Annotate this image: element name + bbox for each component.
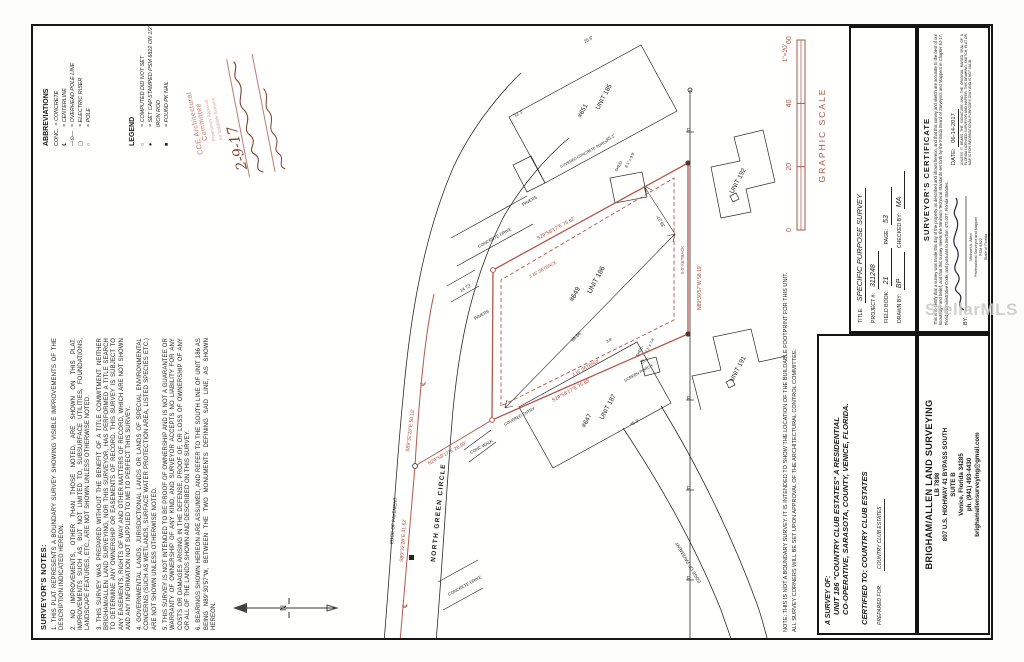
surveyor-signature-icon — [951, 194, 969, 314]
graphic-scale: 0204060 1"=20' GRAPHIC SCALE — [773, 26, 844, 240]
firm-address-line: ph. (941) 493-4430 — [966, 344, 974, 625]
title-block-row: PROJECT #:311248 — [870, 36, 879, 323]
plat-label: #649 — [569, 286, 583, 303]
firm-address-line: LB 7898 — [934, 344, 942, 625]
svg-text:20: 20 — [786, 163, 793, 171]
stellar-mls-watermark: StellarMLS — [925, 300, 1018, 320]
svg-text:0: 0 — [786, 228, 793, 232]
plat-label: ℄ — [402, 603, 409, 610]
footnote-line1: NOTE: THIS IS NOT A BOUNDARY SURVEY. IT … — [783, 250, 790, 632]
plat-label: 45.3' — [629, 418, 640, 427]
plat-label: #647 — [581, 413, 594, 429]
plat-label: 25.6' — [583, 35, 594, 44]
rotated-document-wrapper: SURVEYOR'S NOTES: 1. THIS PLAT REPRESENT… — [31, 24, 993, 640]
computed-point-icon — [413, 464, 418, 469]
svg-text:1"=20': 1"=20' — [782, 44, 789, 62]
abbreviations: ABBREVIATIONS CONC.= CONCRETE℄= CENTERLI… — [43, 26, 94, 146]
surveyor-note-3: 3. THIS SURVEY WAS PREPARED WITHOUT THE … — [97, 338, 134, 630]
plat-label: PAVERS — [521, 194, 538, 206]
certificate-title: SURVEYOR'S CERTIFICATE — [922, 34, 931, 325]
title-block: TITLE:SPECIFIC PURPOSE SURVEYPROJECT #:3… — [849, 26, 917, 334]
computed-point-icon — [491, 268, 496, 273]
plat-label: E — [687, 128, 691, 134]
certificate-block: SURVEYOR'S CERTIFICATE This is to certif… — [917, 26, 990, 334]
notes-list: 1. THIS PLAT REPRESENTS A BOUNDARY SURVE… — [52, 338, 218, 630]
plat-label: 69.86' — [570, 330, 582, 342]
plat-label: 12.1' — [513, 109, 524, 118]
firm-address-line: 807 U.S. HIGHWAY 41 BYPASS SOUTH — [942, 344, 950, 625]
site-features — [438, 45, 785, 610]
plat-label: S89°32'28"E 31.62' — [399, 519, 408, 562]
set-monument-icon — [685, 331, 690, 336]
title-block-row: TITLE:SPECIFIC PURPOSE SURVEY — [855, 36, 866, 323]
legend-title: LEGEND — [129, 24, 136, 146]
plat-label: UNIT 192 — [729, 167, 748, 195]
title-block-row: DRAWN BY:BPCHECKED BY:MA — [896, 36, 905, 323]
plat-label: #651 — [577, 103, 590, 119]
firm-address-line: Venice, Florida 34285 — [958, 344, 966, 625]
certificate-body: This is to certify that a survey was mad… — [933, 34, 949, 325]
certified-to: CERTIFIED TO: COUNTRY CLUB ESTATES — [860, 344, 869, 625]
plat-label: 20.1' — [639, 356, 649, 365]
plat-label: SCREEN PORCH — [623, 363, 654, 383]
dimension-arrows — [447, 186, 675, 408]
surveyor-note-2: 2. NO IMPROVEMENTS, OTHER THAN THOSE NOT… — [71, 338, 93, 630]
surveyors-notes: SURVEYOR'S NOTES: 1. THIS PLAT REPRESENT… — [39, 338, 222, 630]
surveyor-note-6: 6. BEARINGS SHOWN HEREON ARE ASSUMED, AN… — [196, 338, 218, 630]
set-monument-icon — [685, 160, 690, 165]
survey-of-block: A SURVEY OF: UNIT 186 "COUNTRY CLUB ESTA… — [817, 334, 917, 635]
scale-bar-icon: 0204060 1"=20' GRAPHIC SCALE — [773, 26, 839, 240]
plat-label: 36.27' — [656, 214, 666, 227]
plat-label: S29°58'17"E 75.65' — [551, 378, 592, 404]
surveyor-note-1: 1. THIS PLAT REPRESENTS A BOUNDARY SURVE… — [52, 338, 67, 630]
survey-of-line2: CO-OPERATIVE, SARASOTA, COUNTY, VENICE, … — [841, 344, 850, 615]
legend: LEGEND ○= COMPUTED DID NOT SET●= SET CAP… — [129, 24, 171, 146]
survey-sheet: SURVEYOR'S NOTES: 1. THIS PLAT REPRESENT… — [31, 24, 993, 640]
symbol-row: ℄= CENTERLINE — [61, 26, 69, 146]
footnote-line2: ALL SURVEY CORNERS WILL BE SET UPON APPR… — [792, 250, 799, 632]
plat-label: E — [687, 576, 691, 582]
firm-name: BRIGHAM/ALLEN LAND SURVEYING — [924, 344, 934, 625]
plat-label: E — [687, 396, 691, 402]
plat-label: N89°30'57"W 58.19' — [697, 265, 703, 310]
plat-label: SHED- — [613, 159, 624, 173]
plat-label: 5.0' SETBACK — [680, 246, 685, 274]
plat-label: E — [687, 486, 691, 492]
symbol-row: ▢= ELECTRIC RISER — [77, 26, 85, 146]
certificate-date: 06-14-2017 — [951, 109, 959, 147]
plat-label: COVERED CONCRETE PORCH — [560, 139, 610, 169]
plat-label: 45.1' — [605, 133, 616, 142]
symbol-row: ■= FOUND PK NAIL — [163, 24, 171, 146]
symbol-row: ○= POLE — [85, 26, 93, 146]
symbol-row: ○= COMPUTED DID NOT SET — [139, 24, 147, 146]
svg-text:GRAPHIC SCALE: GRAPHIC SCALE — [817, 88, 827, 183]
plat-label: UNIT 187 — [599, 393, 618, 421]
abbreviations-title: ABBREVIATIONS — [43, 26, 50, 146]
title-block-row: FIELD BOOK:21PAGE:53 — [883, 36, 892, 323]
plat-label: COVERED ENTRY — [503, 406, 536, 427]
prepared-for: PREPARED FOR: COUNTRY CLUB ESTATES — [877, 344, 883, 625]
plat-labels: S89°32'28"E 31.62'S89°32'28"E 50.18'N29°… — [389, 35, 748, 609]
computed-point-icon — [490, 418, 495, 423]
plat-label: 3.8' — [605, 336, 613, 344]
plat-label: PAVERS — [473, 308, 490, 320]
plat-label: S89°32'28"E 50.18' — [405, 409, 416, 452]
surveyor-note-4: 4. GOVERNMENTAL LANDS, JURISDICTIONAL LA… — [137, 338, 159, 630]
firm-block: BRIGHAM/ALLEN LAND SURVEYING LB 7898807 … — [917, 334, 990, 635]
certificate-date-area: DATE: 06-14-2017 UNLESS IT BEARS THE SIG… — [951, 34, 989, 165]
plat-label: 3.15' SETBACK — [528, 260, 557, 279]
survey-of-heading: A SURVEY OF: — [825, 344, 832, 625]
firm-address-line: brighamallensurveying@gmail.com — [974, 344, 982, 625]
plat-label: UNIT 185 — [595, 83, 614, 111]
overhead-pole-line — [686, 88, 694, 638]
notes-title: SURVEYOR'S NOTES: — [39, 338, 48, 630]
firm-address-line: SUITE B — [950, 344, 958, 625]
plat-label: N29°58'17"E 26.99' — [427, 441, 468, 467]
scanned-survey-document: { "colors": { "plat_red": "#b5574c", "pl… — [0, 0, 1024, 662]
plat-label: UNIT 191 — [729, 355, 748, 383]
plat-label: ℄ — [420, 380, 428, 387]
plat-label: NORTH GREEN CIRCLE — [430, 463, 447, 562]
symbol-row: —⊙—= OVERHEAD POLE LINE — [69, 26, 77, 146]
svg-text:60: 60 — [786, 36, 793, 44]
plat-label: CONCRETE DRIVE — [447, 574, 482, 597]
symbol-row: ●= SET CAP STAMPED PSM 6822 ON 1/2" IRON… — [147, 24, 163, 146]
plat-label: EDGE OF PAVEMENT — [389, 497, 398, 544]
plat-label: 8.1' x 9.9' — [623, 151, 635, 168]
plat-drawing: S89°32'28"E 31.62'S89°32'28"E 50.18'N29°… — [283, 22, 785, 638]
survey-of-line1: UNIT 186 "COUNTRY CLUB ESTATES" A RESIDE… — [832, 344, 841, 615]
plat-label: S29°58'17"E 75.62' — [536, 216, 577, 242]
found-monument-icon — [409, 555, 414, 560]
approval-stamp: CCE Architectural Committee Preliminary … — [176, 27, 298, 204]
plat-label: UNIT 186 — [587, 265, 607, 295]
signer-line: State of Florida — [984, 187, 989, 307]
symbol-row: CONC.= CONCRETE — [53, 26, 61, 146]
surveyor-note-5: 5. THIS SURVEY IS NOT INTENDED TO BE PRO… — [163, 338, 192, 630]
certificate-disclaimer: UNLESS IT BEARS THE SIGNATURE AND THE OR… — [960, 34, 972, 165]
svg-text:40: 40 — [786, 99, 793, 107]
buildable-footprint-note: NOTE: THIS IS NOT A BOUNDARY SURVEY. IT … — [783, 250, 800, 632]
